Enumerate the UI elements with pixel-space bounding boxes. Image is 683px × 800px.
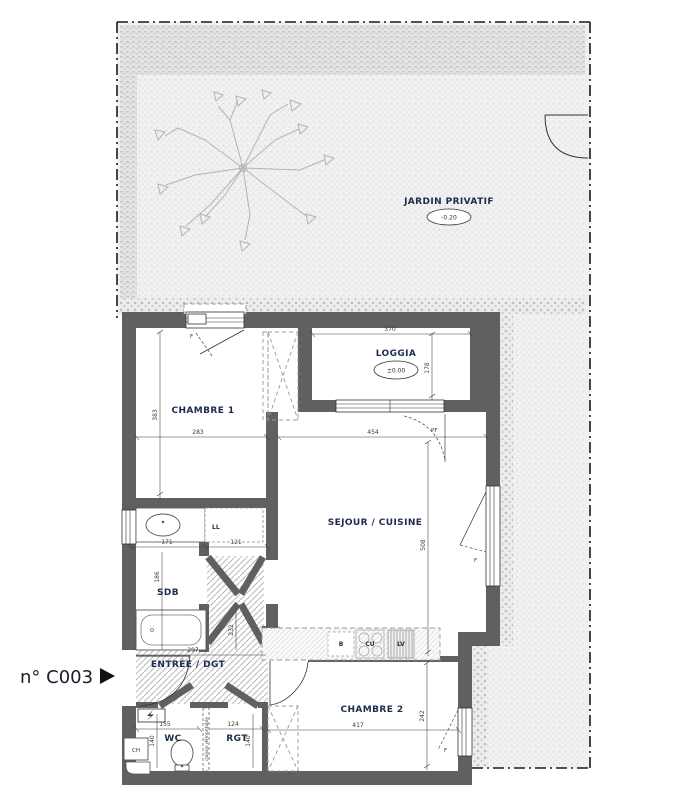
- chambre1-closet: [263, 332, 298, 420]
- wc-dim-w: 155: [159, 721, 171, 728]
- garden-label: JARDIN PRIVATIF: [403, 197, 494, 207]
- cloison-demontable-label: cloison démontable: [203, 717, 210, 761]
- chambre1-window-label: F: [190, 334, 193, 340]
- entree-label: ENTRÉE / DGT: [151, 658, 226, 670]
- entree-dim-w: 297: [187, 647, 199, 654]
- loggia-level: ±0.00: [387, 368, 406, 375]
- sejour-label: SEJOUR / CUISINE: [328, 518, 423, 528]
- kitchen-counter: B CU LV: [262, 628, 440, 660]
- unit-number: n° C003: [20, 667, 93, 688]
- sdb-dim-w: 171: [161, 539, 173, 546]
- sejour-window: F: [460, 486, 500, 586]
- wc-label: WC: [164, 734, 181, 744]
- washer-label: LL: [212, 524, 220, 531]
- chambre2-label: CHAMBRE 2: [341, 705, 404, 715]
- loggia-dim-w: 370: [384, 326, 396, 333]
- couloir-dim-w: 121: [230, 539, 242, 546]
- chambre2-door: [270, 661, 308, 705]
- loggia-dim-d: 178: [424, 362, 431, 374]
- wc-dim-d: 140: [149, 735, 156, 747]
- floorplan-page: JARDIN PRIVATIF -0.20: [0, 0, 683, 800]
- kitchen-sink-label: B: [339, 641, 344, 648]
- sejour-window-label: F: [474, 558, 477, 564]
- rgt-label: RGT: [226, 734, 248, 744]
- gravel-strip-right-upper: [500, 315, 513, 645]
- toilet: [171, 740, 193, 771]
- garden-level: -0.20: [441, 215, 457, 222]
- rgt-dim-w: 124: [227, 721, 239, 728]
- water-heater: CH: [124, 738, 150, 774]
- couloir-dim-d: 232: [228, 624, 235, 636]
- floorplan-drawing: JARDIN PRIVATIF -0.20: [0, 0, 683, 800]
- sejour-pf-label: PF: [431, 428, 437, 434]
- hedge-top: [120, 25, 585, 75]
- chambre2-closet: [268, 706, 298, 771]
- sdb-dim-d: 186: [154, 571, 161, 583]
- sejour-dim-d: 508: [420, 539, 427, 551]
- chambre2-window: F: [438, 708, 472, 756]
- bathtub: [136, 610, 206, 650]
- sdb-window: [122, 510, 136, 544]
- sdb-counter: LL: [136, 508, 263, 542]
- structural-walls: [122, 312, 500, 785]
- water-heater-label: CH: [132, 748, 140, 754]
- cloison-demontable: cloison démontable: [203, 708, 210, 771]
- chambre2-window-label: F: [444, 748, 447, 754]
- chambre2-dim-w: 417: [352, 722, 364, 729]
- chambre1-label: CHAMBRE 1: [172, 406, 235, 416]
- loggia-pf-window: PF: [336, 400, 445, 462]
- hedge-left: [120, 75, 137, 301]
- chambre2-dim-d: 242: [419, 710, 426, 722]
- unit-arrow-icon: [100, 668, 115, 684]
- chambre1-dim-d: 383: [152, 409, 159, 421]
- gravel-strip-right-lower: [472, 646, 487, 768]
- unit-identifier: n° C003: [20, 667, 115, 688]
- chambre1-dim-w: 283: [192, 429, 204, 436]
- kitchen-dishwasher-label: LV: [397, 641, 405, 648]
- sejour-dim-w: 454: [367, 429, 379, 436]
- sdb-label: SDB: [157, 588, 179, 598]
- loggia-label: LOGGIA: [376, 349, 417, 359]
- chambre1-window: F: [184, 304, 246, 356]
- kitchen-hob-label: CU: [365, 641, 374, 648]
